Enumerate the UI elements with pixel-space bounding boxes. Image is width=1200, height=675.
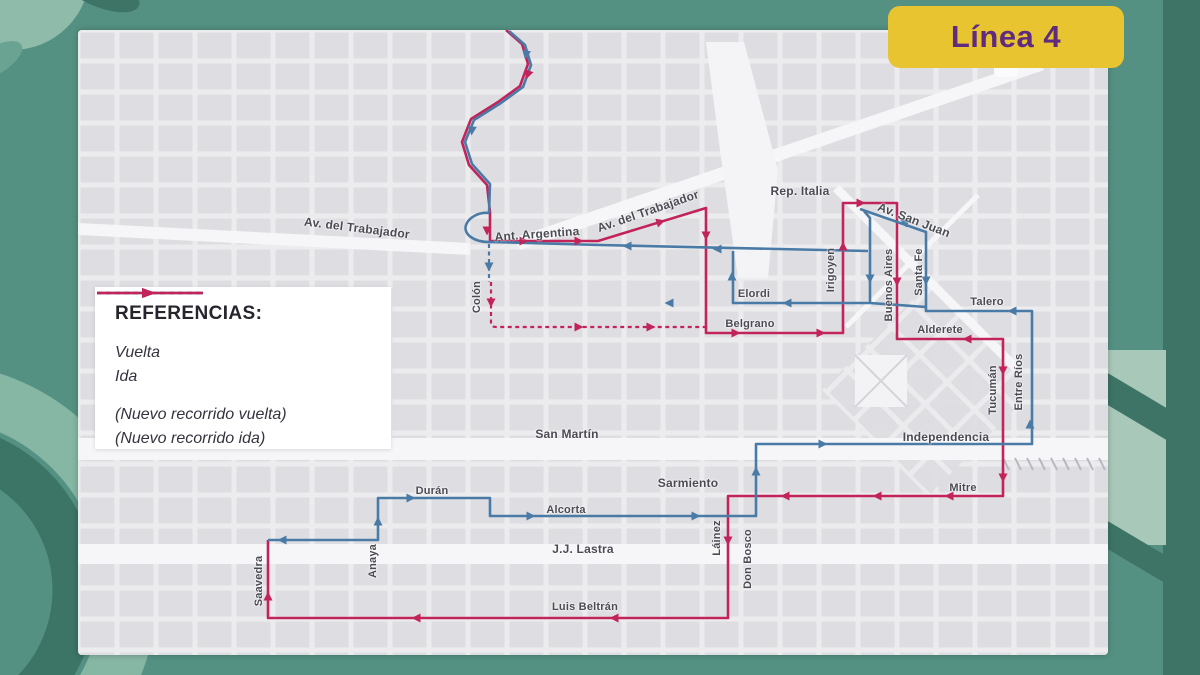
legend-label-nuevo-ida: (Nuevo recorrido ida) — [115, 430, 265, 448]
street-label-entre-rios: Entre Ríos — [1013, 353, 1025, 410]
street-label-independencia: Independencia — [903, 430, 990, 444]
street-label-lainez: Láinez — [711, 520, 723, 555]
legend-label-ida: Ida — [115, 368, 137, 386]
line-badge: Línea 4 — [888, 6, 1124, 68]
street-label-talero: Talero — [970, 296, 1003, 308]
legend-label-vuelta: Vuelta — [115, 344, 160, 362]
street-label-alderete: Alderete — [917, 324, 963, 336]
legend-item-ida: Ida — [115, 365, 391, 389]
street-label-irigoyen: Irigoyen — [825, 248, 837, 292]
street-label-sarmiento: Sarmiento — [658, 476, 718, 490]
legend-item-vuelta: Vuelta — [115, 341, 391, 365]
street-label-buenos-aires: Buenos Aires — [883, 249, 895, 322]
street-label-duran: Durán — [416, 485, 449, 497]
route-map: Av. del Trabajador Ant. Argentina Av. de… — [78, 30, 1108, 655]
street-label-saavedra: Saavedra — [253, 556, 265, 607]
street-label-santa-fe: Santa Fe — [913, 248, 925, 295]
street-label-elordi: Elordi — [738, 288, 770, 300]
street-label-anaya: Anaya — [367, 544, 379, 578]
legend-item-nuevo-ida: (Nuevo recorrido ida) — [115, 427, 391, 451]
street-label-belgrano: Belgrano — [725, 318, 774, 330]
street-label-luis-beltran: Luis Beltrán — [552, 601, 618, 613]
legend-title: REFERENCIAS: — [115, 303, 391, 325]
page: { "badge": { "label": "Línea 4" }, "lege… — [0, 0, 1200, 675]
street-label-colon: Colón — [471, 281, 483, 313]
legend-item-nuevo-vuelta: (Nuevo recorrido vuelta) — [115, 403, 391, 427]
street-label-tucuman: Tucumán — [987, 365, 999, 414]
street-label-san-martin: San Martín — [535, 427, 598, 441]
nuevo-ida-line-swatch — [95, 287, 205, 299]
street-label-mitre: Mitre — [949, 482, 976, 494]
street-label-alcorta: Alcorta — [546, 504, 585, 516]
street-label-rep-italia: Rep. Italia — [771, 184, 830, 198]
street-label-don-bosco: Don Bosco — [742, 529, 754, 589]
street-label-jj-lastra: J.J. Lastra — [552, 542, 614, 556]
legend-label-nuevo-vuelta: (Nuevo recorrido vuelta) — [115, 406, 287, 424]
legend: REFERENCIAS: Vuelta Ida (Nuevo recorrido… — [95, 287, 391, 449]
